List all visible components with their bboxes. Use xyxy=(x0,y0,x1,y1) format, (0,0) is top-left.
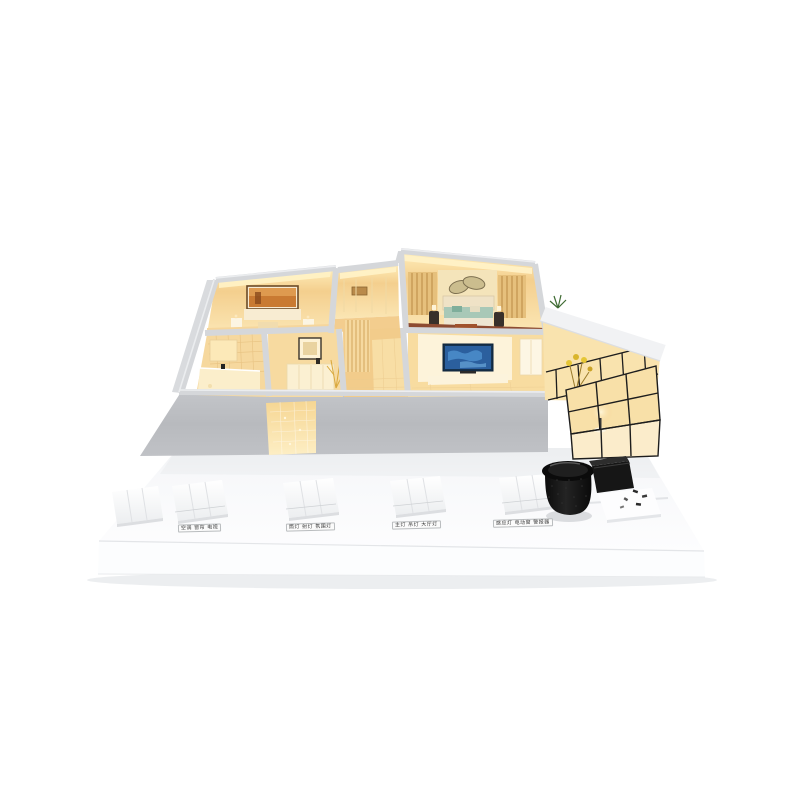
slat-partition xyxy=(345,320,370,372)
scene-svg xyxy=(0,0,800,800)
living-room xyxy=(408,330,548,397)
picture-art xyxy=(303,342,317,355)
vanity-counter xyxy=(198,368,260,392)
bed-headboard xyxy=(244,309,301,320)
pillow xyxy=(452,306,462,312)
entrance-doorway xyxy=(266,401,316,455)
bathroom-mirror xyxy=(210,340,237,361)
bed-end-bench xyxy=(455,324,477,328)
kitchen-appliance xyxy=(352,287,367,295)
front-facade xyxy=(140,392,548,456)
switch-panel-3 xyxy=(283,478,339,521)
bathroom xyxy=(196,331,269,397)
bath-accessory xyxy=(208,384,212,388)
switch-label-4: 感应灯 电动窗 警报器 xyxy=(493,518,553,528)
sensor-tray xyxy=(598,488,661,523)
house-model xyxy=(140,249,666,459)
switch-label-3: 主灯 吊灯 大厅灯 xyxy=(392,520,441,529)
dining-area xyxy=(268,329,345,397)
smart-speaker xyxy=(542,461,594,522)
table-lamp xyxy=(432,305,436,310)
pillow xyxy=(470,306,480,312)
soundbar xyxy=(460,371,476,374)
slat-wall-panel xyxy=(498,275,526,318)
faucet xyxy=(221,364,225,369)
sideboard xyxy=(287,364,334,390)
switch-label-2: 筒灯 射灯 氛围灯 xyxy=(286,522,335,531)
table-lamp xyxy=(497,306,501,311)
decor-vase xyxy=(316,358,320,364)
switch-panel-4 xyxy=(390,476,446,518)
hallway xyxy=(343,320,408,397)
switch-panel-1 xyxy=(112,486,163,527)
product-photo: 空调 窗帘 电视 筒灯 射灯 氛围灯 主灯 吊灯 大厅灯 感应灯 电动窗 警报器 xyxy=(0,0,800,800)
switch-label-1: 空调 窗帘 电视 xyxy=(178,523,221,532)
dark-nightstand xyxy=(494,312,504,327)
switch-panel-2 xyxy=(172,480,228,524)
roof-plant xyxy=(550,295,566,308)
dark-nightstand xyxy=(429,311,439,326)
tv-screen xyxy=(445,346,491,369)
